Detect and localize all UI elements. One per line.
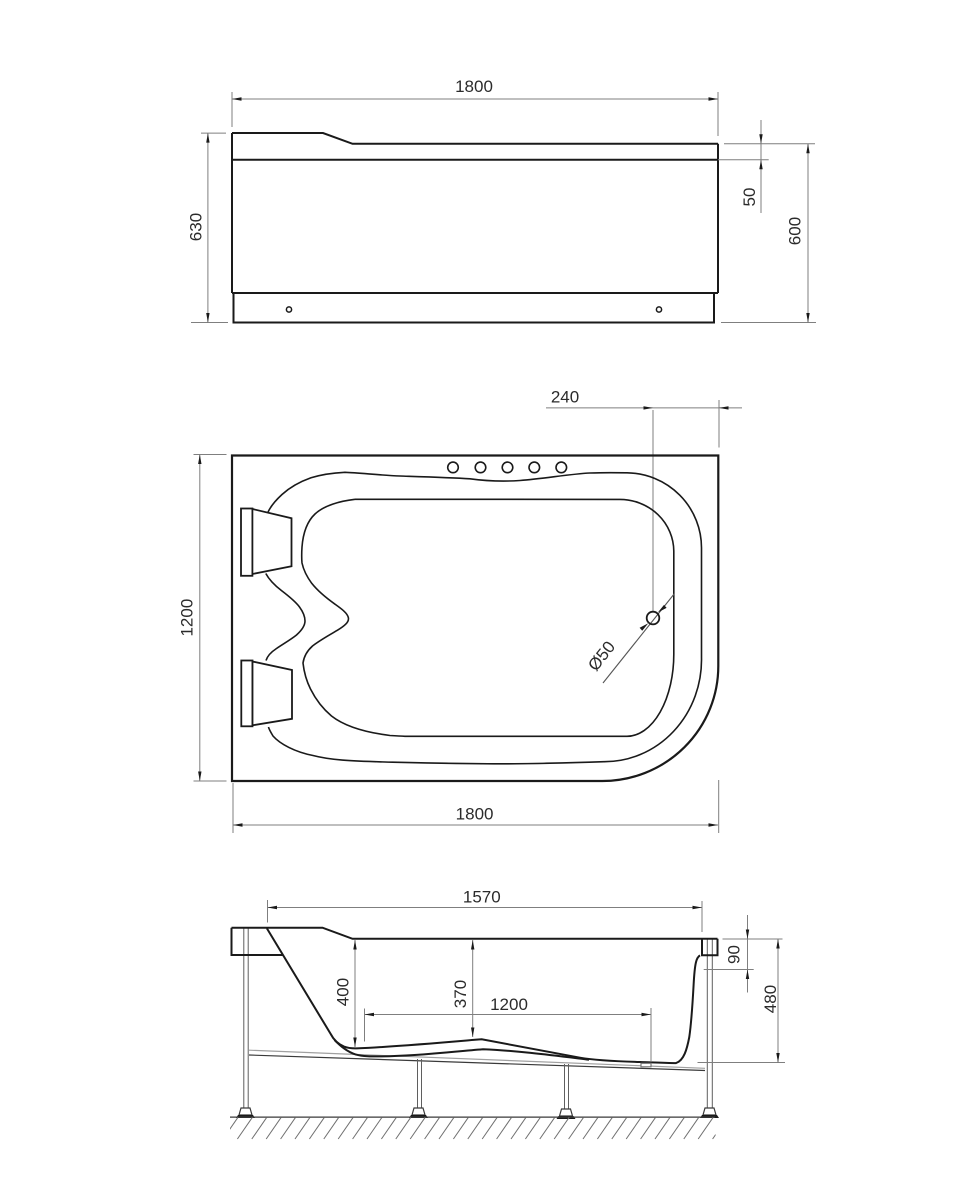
svg-text:400: 400 [334, 978, 353, 1006]
svg-text:600: 600 [786, 217, 805, 245]
svg-text:1800: 1800 [455, 77, 493, 96]
svg-text:50: 50 [740, 188, 759, 207]
svg-text:480: 480 [761, 985, 780, 1013]
svg-text:90: 90 [725, 945, 744, 964]
svg-text:630: 630 [187, 213, 206, 241]
svg-text:240: 240 [551, 388, 579, 407]
svg-text:1570: 1570 [463, 888, 501, 907]
svg-text:1200: 1200 [490, 995, 528, 1014]
svg-text:1200: 1200 [178, 599, 197, 637]
svg-text:1800: 1800 [456, 805, 494, 824]
svg-text:370: 370 [451, 980, 470, 1008]
